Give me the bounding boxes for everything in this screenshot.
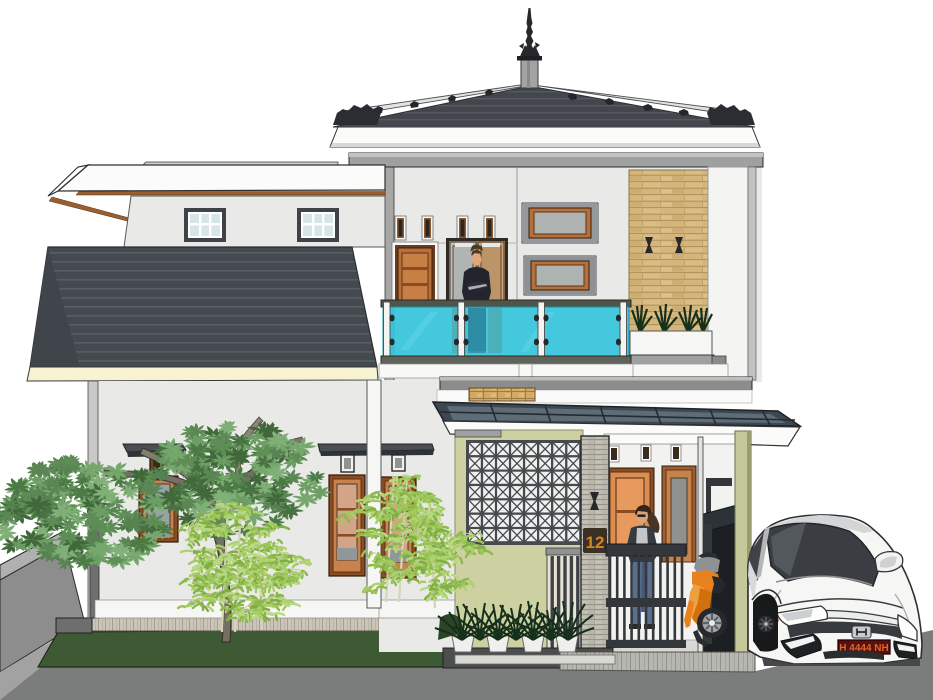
svg-text:12: 12 [586, 533, 605, 552]
